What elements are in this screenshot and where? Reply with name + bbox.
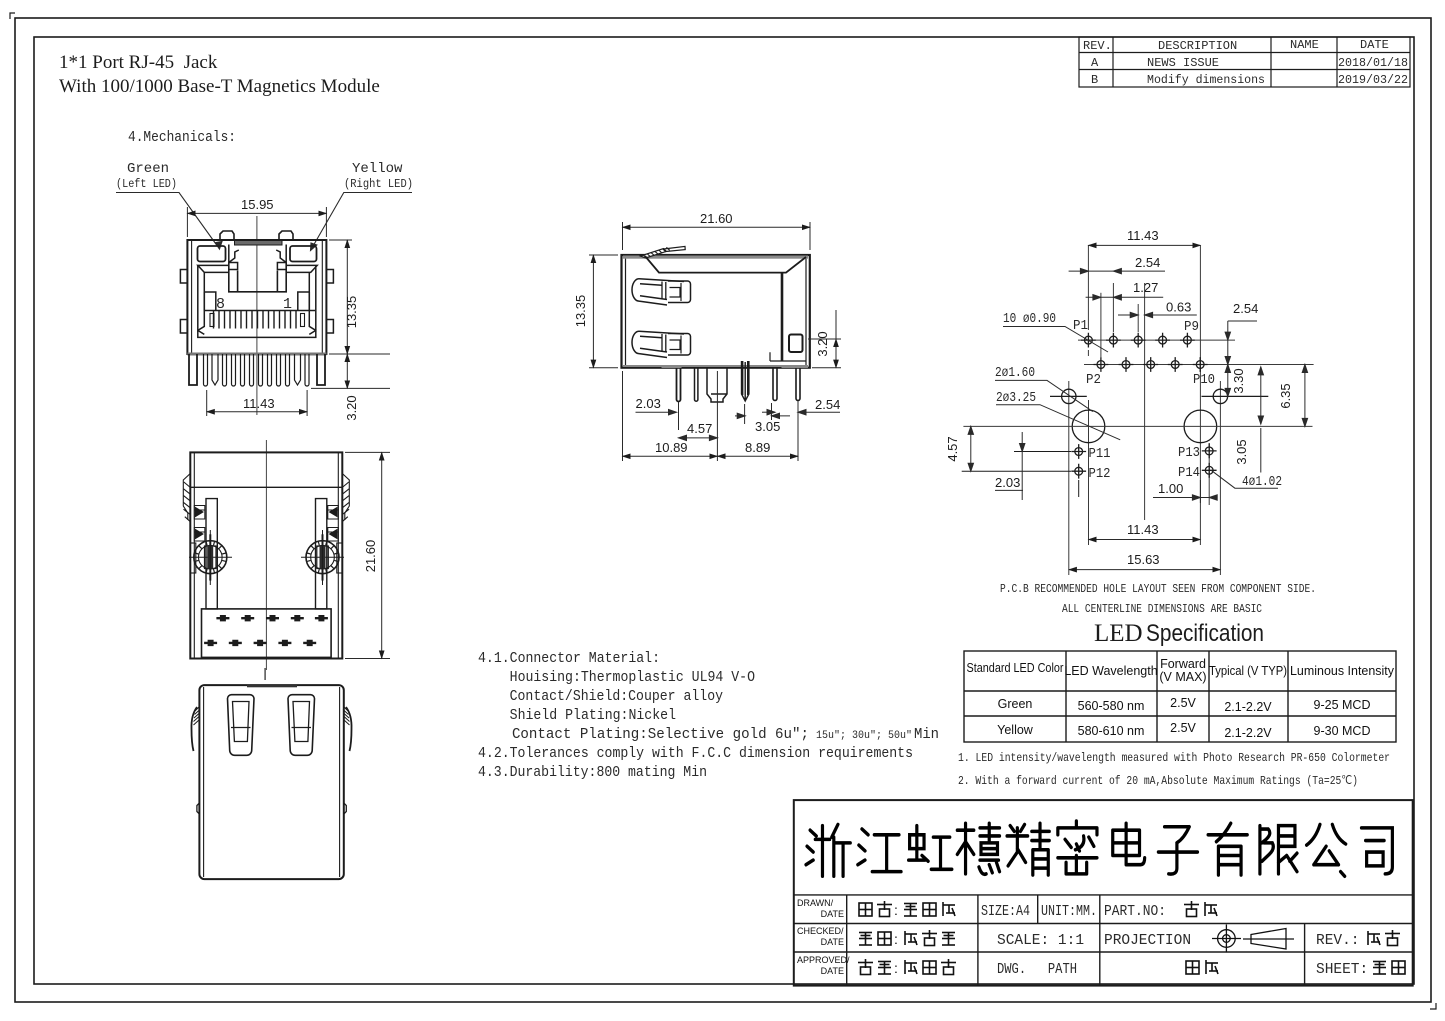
svg-text:1. LED intensity/wavelength me: 1. LED intensity/wavelength measured wit…	[958, 751, 1390, 765]
svg-text:DATE: DATE	[1360, 38, 1389, 52]
svg-text:4.57: 4.57	[687, 421, 712, 436]
svg-text:PART.NO:: PART.NO:	[1104, 904, 1166, 920]
svg-text:Yellow: Yellow	[997, 723, 1034, 737]
svg-text:Contact Plating:Selective gold: Contact Plating:Selective gold 6u″;	[478, 727, 809, 743]
svg-text:10 ø0.90: 10 ø0.90	[1003, 311, 1056, 327]
svg-text:P2: P2	[1086, 372, 1101, 388]
svg-text:560-580 nm: 560-580 nm	[1078, 699, 1145, 713]
svg-text:2.5V: 2.5V	[1170, 721, 1196, 735]
svg-text:4.Mechanicals:: 4.Mechanicals:	[128, 129, 236, 146]
svg-text:(Right LED): (Right LED)	[344, 178, 413, 191]
svg-text:NAME: NAME	[1290, 38, 1319, 52]
svg-text:580-610 nm: 580-610 nm	[1078, 724, 1145, 738]
svg-text:10.89: 10.89	[655, 440, 688, 455]
svg-text:Modify dimensions: Modify dimensions	[1147, 73, 1265, 87]
svg-text:21.60: 21.60	[363, 540, 378, 573]
svg-text:11.43: 11.43	[1127, 228, 1159, 243]
svg-text:2.1-2.2V: 2.1-2.2V	[1224, 700, 1272, 714]
svg-text:Specification: Specification	[1146, 620, 1264, 647]
svg-text:4.57: 4.57	[945, 436, 960, 461]
svg-text:8: 8	[216, 296, 225, 313]
svg-text::: :	[894, 902, 898, 918]
svg-text:(V MAX): (V MAX)	[1159, 670, 1206, 684]
svg-text:B: B	[1091, 73, 1098, 87]
svg-text:PROJECTION: PROJECTION	[1104, 933, 1191, 949]
svg-text:Typical (V TYP): Typical (V TYP)	[1209, 664, 1287, 678]
svg-text:2.03: 2.03	[995, 475, 1020, 490]
svg-text:P.C.B RECOMMENDED HOLE LAYOUT: P.C.B RECOMMENDED HOLE LAYOUT SEEN FROM …	[1000, 583, 1316, 596]
svg-text:2ø1.60: 2ø1.60	[995, 365, 1035, 381]
svg-text:P12: P12	[1089, 466, 1111, 482]
svg-text:8.89: 8.89	[745, 440, 770, 455]
svg-text:Standard LED Color: Standard LED Color	[967, 661, 1064, 675]
svg-text:4.2.Tolerances comply with F.C: 4.2.Tolerances comply with F.C.C dimensi…	[478, 746, 913, 762]
svg-text:2018/01/18: 2018/01/18	[1338, 56, 1408, 70]
svg-text:Min: Min	[914, 727, 939, 743]
svg-text:REV.: REV.	[1083, 39, 1112, 53]
svg-text:15.95: 15.95	[241, 197, 274, 212]
svg-text:(Left LED): (Left LED)	[116, 178, 177, 191]
svg-text:DATE: DATE	[821, 937, 844, 947]
svg-text::: :	[894, 931, 898, 947]
svg-text:2.03: 2.03	[636, 396, 661, 411]
svg-text:With 100/1000 Base-T Magnetics: With 100/1000 Base-T Magnetics Module	[59, 76, 380, 97]
svg-text:2ø3.25: 2ø3.25	[996, 390, 1036, 406]
svg-text:CHECKED/: CHECKED/	[797, 926, 844, 936]
svg-text:3.05: 3.05	[1234, 439, 1249, 464]
svg-text:3.30: 3.30	[1231, 368, 1246, 393]
svg-text:9-25 MCD: 9-25 MCD	[1314, 698, 1371, 712]
svg-text:21.60: 21.60	[700, 211, 733, 226]
svg-text:2.1-2.2V: 2.1-2.2V	[1224, 726, 1272, 740]
svg-text:DATE: DATE	[821, 909, 844, 919]
svg-text:2.54: 2.54	[1233, 301, 1258, 316]
svg-text:SHEET:: SHEET:	[1316, 962, 1368, 978]
svg-text:4ø1.02: 4ø1.02	[1242, 474, 1282, 490]
svg-text:DESCRIPTION: DESCRIPTION	[1158, 39, 1237, 53]
svg-text:UNIT:MM.: UNIT:MM.	[1041, 904, 1097, 920]
svg-text:A: A	[1091, 56, 1099, 70]
svg-text:0.63: 0.63	[1166, 300, 1191, 315]
svg-text:3.20: 3.20	[344, 395, 359, 420]
svg-text:11.43: 11.43	[1127, 522, 1159, 537]
svg-text:15.63: 15.63	[1127, 552, 1160, 567]
svg-text:13.35: 13.35	[344, 296, 359, 329]
svg-text:P13: P13	[1178, 445, 1200, 461]
svg-text:Houising:Thermoplastic UL94 V-: Houising:Thermoplastic UL94 V-O	[478, 670, 755, 686]
svg-text:DWG. PATH: DWG. PATH	[997, 962, 1077, 978]
svg-text:APPROVED/: APPROVED/	[797, 955, 850, 965]
svg-text:9-30 MCD: 9-30 MCD	[1314, 724, 1371, 738]
svg-text:2.54: 2.54	[815, 397, 840, 412]
svg-text:SCALE: 1:1: SCALE: 1:1	[997, 933, 1084, 949]
svg-text:15u″; 30u″; 50u″: 15u″; 30u″; 50u″	[816, 730, 912, 742]
svg-text:3.20: 3.20	[815, 331, 830, 356]
svg-text:1*1 Port RJ-45 Jack: 1*1 Port RJ-45 Jack	[59, 52, 218, 73]
svg-text:6.35: 6.35	[1278, 383, 1293, 408]
svg-text:2.54: 2.54	[1135, 255, 1160, 270]
svg-text:4.3.Durability:800 mating Min: 4.3.Durability:800 mating Min	[478, 765, 707, 781]
svg-text:Luminous Intensity: Luminous Intensity	[1290, 664, 1395, 678]
svg-text:P10: P10	[1193, 372, 1215, 388]
svg-text:Yellow: Yellow	[352, 161, 403, 177]
svg-text:LED: LED	[1094, 620, 1143, 647]
svg-text:3.05: 3.05	[755, 419, 780, 434]
svg-text:LED Wavelength: LED Wavelength	[1064, 664, 1157, 678]
svg-text:13.35: 13.35	[573, 295, 588, 328]
svg-text:P11: P11	[1089, 446, 1111, 462]
svg-text:P1: P1	[1073, 318, 1088, 334]
svg-text:Green: Green	[127, 161, 169, 177]
svg-text:P14: P14	[1178, 465, 1200, 481]
svg-text:REV.:: REV.:	[1316, 933, 1360, 949]
svg-text:1.00: 1.00	[1158, 481, 1183, 496]
svg-text:1.27: 1.27	[1133, 280, 1158, 295]
svg-text:2019/03/22: 2019/03/22	[1338, 73, 1408, 87]
svg-text:4.1.Connector Material:: 4.1.Connector Material:	[478, 651, 660, 667]
svg-text:2.5V: 2.5V	[1170, 696, 1196, 710]
svg-text:DATE: DATE	[821, 966, 844, 976]
svg-text:2. With a forward current of 2: 2. With a forward current of 20 mA,Absol…	[958, 774, 1358, 788]
svg-text:ALL CENTERLINE DIMENSIONS ARE: ALL CENTERLINE DIMENSIONS ARE BASIC	[1062, 603, 1262, 616]
svg-text:P9: P9	[1184, 319, 1199, 335]
svg-text:DRAWN/: DRAWN/	[797, 898, 834, 908]
svg-text:Shield Plating:Nickel: Shield Plating:Nickel	[478, 708, 676, 724]
svg-text:NEWS ISSUE: NEWS ISSUE	[1147, 56, 1219, 70]
svg-text:Contact/Shield:Couper alloy: Contact/Shield:Couper alloy	[478, 689, 723, 705]
svg-text:Forward: Forward	[1160, 657, 1206, 671]
svg-text:1: 1	[283, 296, 292, 313]
svg-text::: :	[894, 960, 898, 976]
svg-text:Green: Green	[998, 697, 1033, 711]
svg-text:11.43: 11.43	[243, 396, 275, 411]
svg-text:SIZE:A4: SIZE:A4	[981, 904, 1030, 920]
